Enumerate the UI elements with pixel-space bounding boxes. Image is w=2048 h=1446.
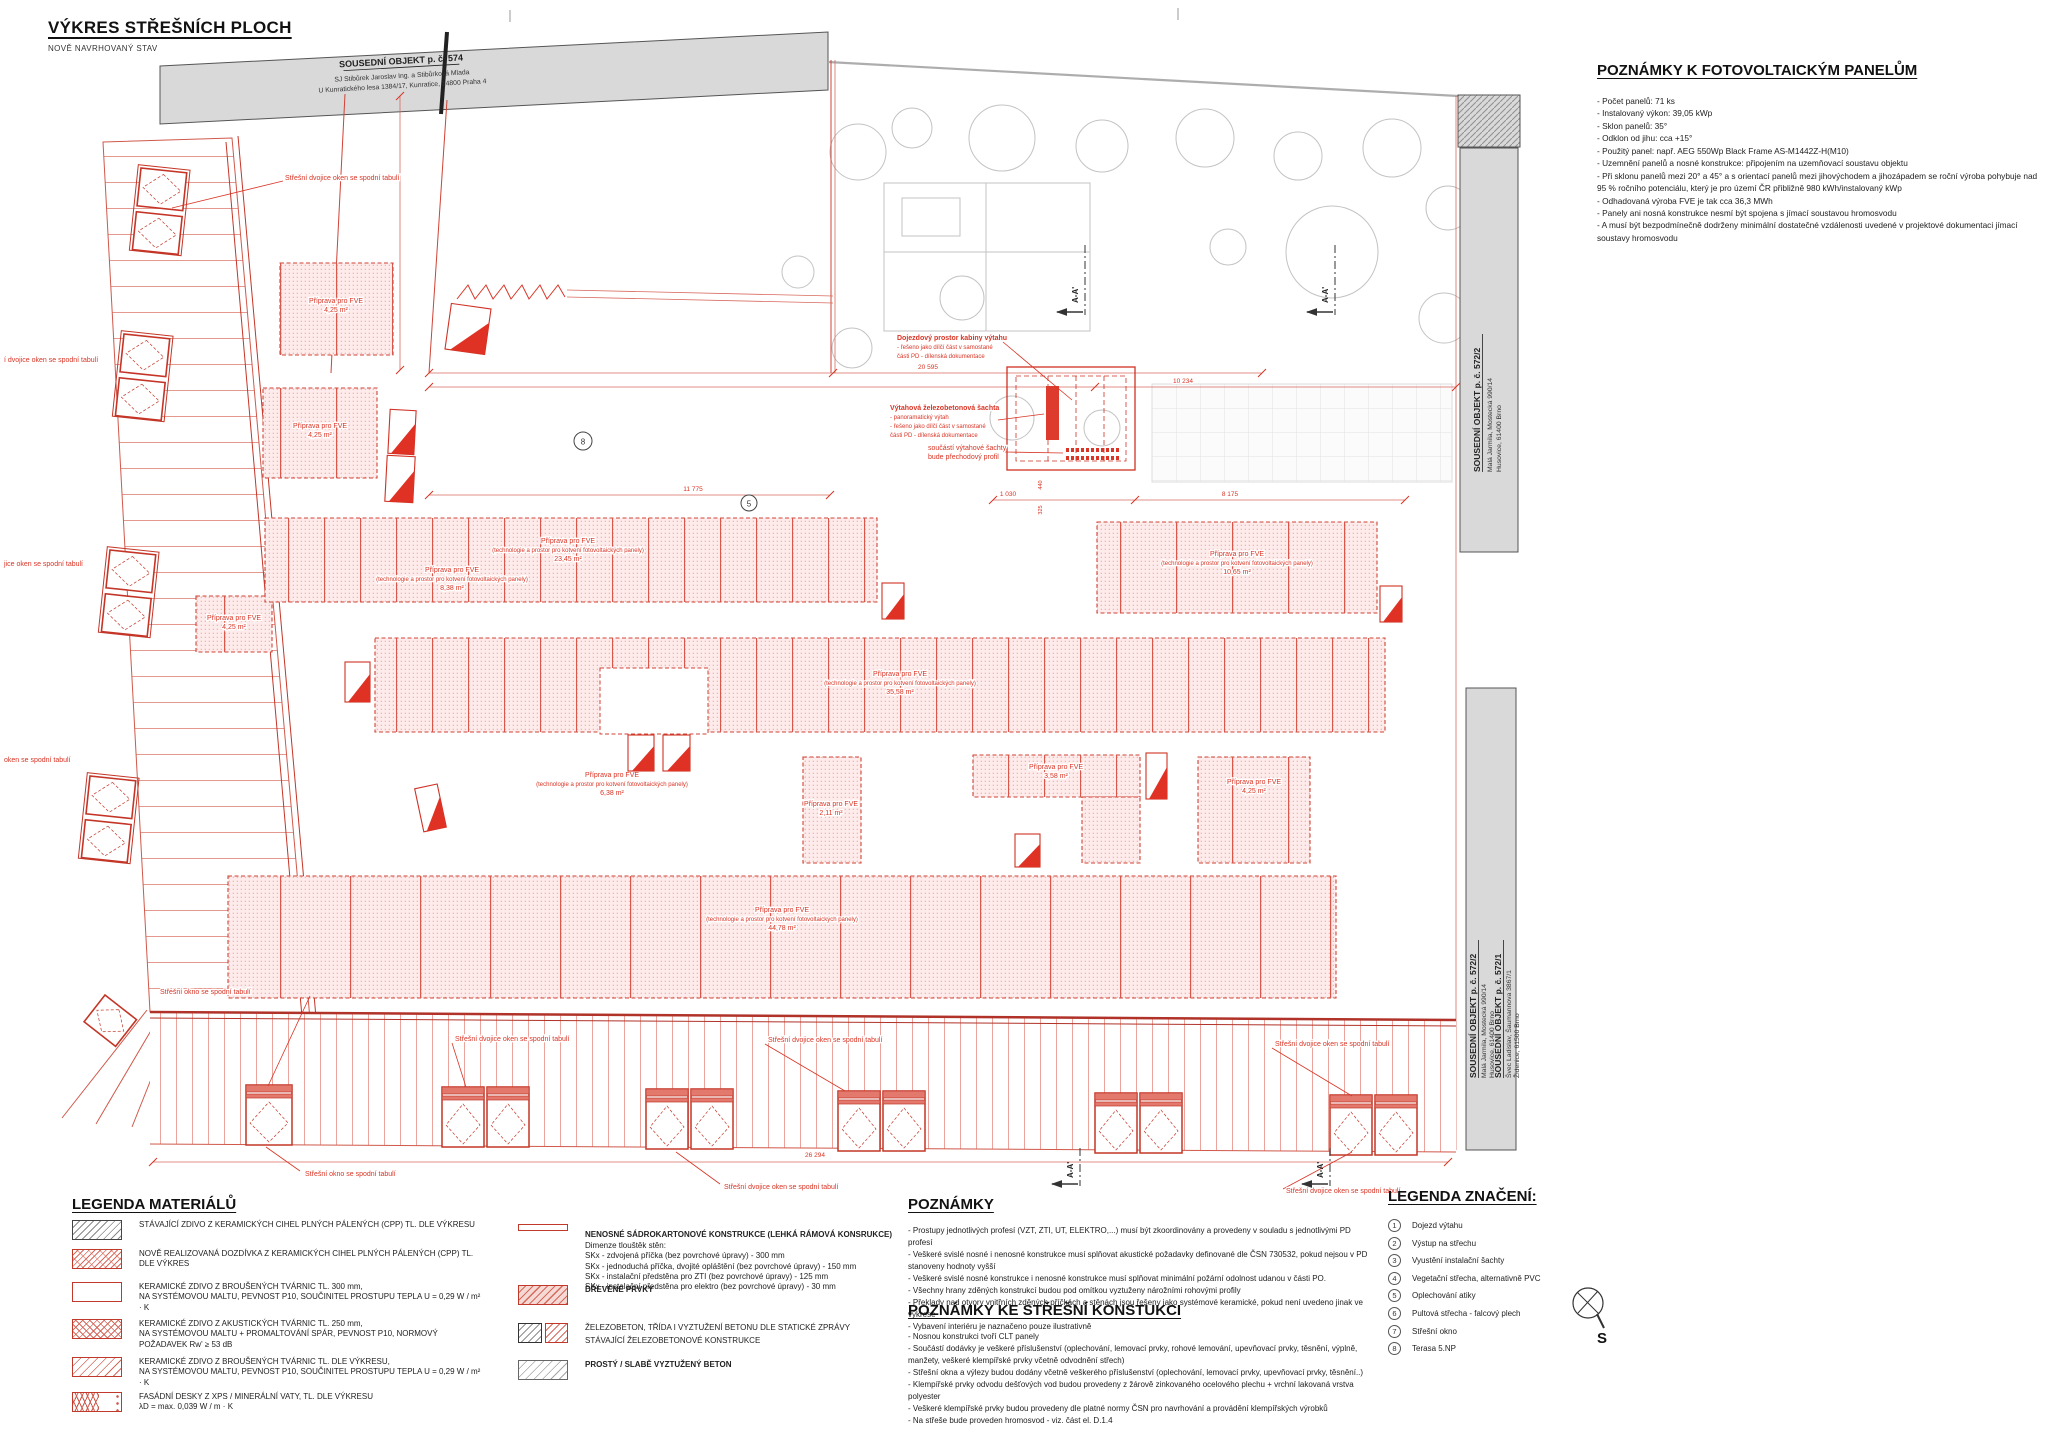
note-line: - Uzemnění panelů a nosné konstrukce: př… xyxy=(1597,157,2044,169)
note-line: - Veškeré svislé nosné konstrukce i neno… xyxy=(908,1273,1368,1285)
hatch-new-infill-swatch xyxy=(72,1249,122,1269)
svg-text:(technologie a prostor pro kot: (technologie a prostor pro kotvení fotov… xyxy=(492,548,644,554)
legend-row: ŽELEZOBETON, TŘÍDA I VYZTUŽENÍ BETONU DL… xyxy=(518,1323,938,1347)
svg-text:Příprava pro FVE: Příprava pro FVE xyxy=(425,567,479,574)
hatch-acoustic-block-swatch xyxy=(72,1319,122,1339)
svg-text:4,25 m²: 4,25 m² xyxy=(324,307,348,314)
hatch-plain-concrete-swatch xyxy=(518,1360,568,1380)
note-line: - Při sklonu panelů mezi 20° a 45° a s o… xyxy=(1597,170,2044,195)
svg-text:Příprava pro FVE: Příprava pro FVE xyxy=(293,423,347,430)
legend-symbols-title: LEGENDA ZNAČENÍ: xyxy=(1388,1188,1688,1205)
svg-text:35,58 m²: 35,58 m² xyxy=(886,689,914,696)
svg-text:Střešní dvojice oken se spodní: Střešní dvojice oken se spodní tabulí xyxy=(285,175,399,182)
svg-text:Příprava pro FVE: Příprava pro FVE xyxy=(541,538,595,545)
pv-notes-title: POZNÁMKY K FOTOVOLTAICKÝM PANELŮM xyxy=(1597,62,2044,79)
svg-text:4,25 m²: 4,25 m² xyxy=(308,432,332,439)
neighbor-bars-right: SOUSEDNÍ OBJEKT p. č. 572/2 Malá Jarmila… xyxy=(1456,95,1521,1150)
neighbor-572-1-address2: Židenice, 61500 Brno xyxy=(1512,1013,1521,1078)
symbol-number-badge: 6 xyxy=(1388,1307,1401,1320)
zone-b-notch xyxy=(600,668,708,734)
svg-text:Střešní okno se spodní tabulí: Střešní okno se spodní tabulí xyxy=(305,1171,396,1178)
legend-row: KERAMICKÉ ZDIVO Z BROUŠENÝCH TVÁRNIC TL.… xyxy=(72,1357,492,1388)
legend-symbols-panel: LEGENDA ZNAČENÍ: 1 Dojezd výtahu 2 Výstu… xyxy=(1388,1188,1688,1360)
svg-text:- panoramatický výtah: - panoramatický výtah xyxy=(890,415,949,421)
legend-materials-panel: LEGENDA MATERIÁLŮ STÁVAJÍCÍ ZDIVO Z KERA… xyxy=(72,1196,912,1436)
svg-text:Příprava pro FVE: Příprava pro FVE xyxy=(585,772,639,779)
page-subtitle: NOVĚ NAVRHOVANÝ STAV xyxy=(48,44,292,53)
note-line: - Nosnou konstrukci tvoří CLT panely xyxy=(908,1331,1368,1343)
garden-house-outline xyxy=(884,183,1090,331)
legend-symbols-list: 1 Dojezd výtahu 2 Výstup na střechu 3 Vy… xyxy=(1388,1219,1688,1355)
svg-text:Střešní dvojice oken se spodní: Střešní dvojice oken se spodní tabulí xyxy=(724,1184,838,1191)
note-line: - Instalovaný výkon: 39,05 kWp xyxy=(1597,107,2044,119)
svg-text:6,38 m²: 6,38 m² xyxy=(600,790,624,797)
symbol-label: Oplechování atiky xyxy=(1412,1291,1476,1300)
bottom-roof-band xyxy=(150,1012,1456,1155)
symbol-label: Dojezd výtahu xyxy=(1412,1221,1463,1230)
hatch-ground-block-swatch xyxy=(72,1357,122,1377)
dim-20595: 20 595 xyxy=(918,364,938,371)
svg-text:8,38 m²: 8,38 m² xyxy=(440,585,464,592)
symbol-label: Vegetační střecha, alternativně PVC xyxy=(1412,1274,1541,1283)
svg-text:(technologie a prostor pro kot: (technologie a prostor pro kotvení fotov… xyxy=(376,577,528,583)
svg-text:Střešní dvojice oken se spodní: Střešní dvojice oken se spodní tabulí xyxy=(768,1037,882,1044)
bottom-roof-window xyxy=(246,1085,292,1145)
note-line: - Klempířské prvky odvodu dešťových vod … xyxy=(908,1379,1368,1403)
sheet-ticks xyxy=(510,8,1178,22)
symbol-number-badge: 1 xyxy=(1388,1219,1401,1232)
garden-paving xyxy=(1152,384,1452,482)
strip-roof-window-pair xyxy=(78,773,139,864)
note-line: - Střešní okna a výlezy budou dodány vče… xyxy=(908,1367,1368,1379)
legend-row: PROSTÝ / SLABĚ VYZTUŽENÝ BETON xyxy=(518,1360,938,1380)
roof-notes-title: POZNÁMKY KE STŘEŠNÍ KONSTUKCI xyxy=(908,1302,1368,1319)
symbol-label: Terasa 5.NP xyxy=(1412,1344,1456,1353)
page-title: VÝKRES STŘEŠNÍCH PLOCH xyxy=(48,18,292,38)
legend-text: KERAMICKÉ ZDIVO Z BROUŠENÝCH TVÁRNIC TL.… xyxy=(139,1282,484,1313)
dim-1030: 1 030 xyxy=(1000,491,1017,498)
svg-text:Příprava pro FVE: Příprava pro FVE xyxy=(804,801,858,808)
svg-text:10,65 m²: 10,65 m² xyxy=(1223,569,1251,576)
mark-5: 5 xyxy=(747,500,752,509)
svg-text:í dvojice oken se spodní tabul: í dvojice oken se spodní tabulí xyxy=(4,357,98,364)
legend-symbol-row: 2 Výstup na střechu xyxy=(1388,1237,1688,1250)
note-line: - Panely ani nosná konstrukce nesmí být … xyxy=(1597,207,2044,219)
legend-drywall-title: NENOSNÉ SÁDROKARTONOVÉ KONSTRUKCE (LEHKÁ… xyxy=(585,1230,892,1239)
svg-text:A-A': A-A' xyxy=(1321,287,1330,303)
svg-text:2,11 m²: 2,11 m² xyxy=(819,810,843,817)
svg-text:(technologie a prostor pro kot: (technologie a prostor pro kotvení fotov… xyxy=(824,681,976,687)
legend-symbol-row: 1 Dojezd výtahu xyxy=(1388,1219,1688,1232)
note-line: - Na střeše bude proveden hromosvod - vi… xyxy=(908,1415,1368,1427)
legend-drywall-line: SKx - jednoduchá příčka, dvojité opláště… xyxy=(585,1262,938,1272)
neighbor-572-2-address2: Husovice, 61400 Brno xyxy=(1496,405,1503,472)
svg-text:Příprava pro FVE: Příprava pro FVE xyxy=(1210,551,1264,558)
svg-text:4,25 m²: 4,25 m² xyxy=(222,624,246,631)
legend-drywall-line: SKx - zdvojená příčka (bez povrchové úpr… xyxy=(585,1251,938,1261)
mark-8: 8 xyxy=(581,438,586,447)
svg-text:Výtahová železobetonová šachta: Výtahová železobetonová šachta xyxy=(890,405,999,412)
svg-text:Střešní dvojice oken se spodní: Střešní dvojice oken se spodní tabulí xyxy=(1275,1041,1389,1048)
symbol-number-badge: 5 xyxy=(1388,1289,1401,1302)
svg-text:bude přechodový profil: bude přechodový profil xyxy=(928,454,999,461)
symbol-label: Výstup na střechu xyxy=(1412,1239,1476,1248)
svg-text:Příprava pro FVE: Příprava pro FVE xyxy=(1029,764,1083,771)
elevator-shaft xyxy=(1046,386,1059,440)
neighbor-572-1-title: SOUSEDNÍ OBJEKT p. č. 572/1 xyxy=(1493,953,1503,1078)
hatch-block-300-swatch xyxy=(72,1282,122,1302)
note-line: - Sklon panelů: 35° xyxy=(1597,120,2044,132)
hatch-concrete-swatches xyxy=(518,1323,568,1343)
dim-10234: 10 234 xyxy=(1173,378,1193,385)
neighbor-572-1-address1: Švec Ladislav, Šaumannova 3867/1 xyxy=(1504,970,1513,1078)
legend-symbol-row: 6 Pultová střecha - falcový plech xyxy=(1388,1307,1688,1320)
note-line: - A musí být bezpodmínečně dodrženy mini… xyxy=(1597,219,2044,244)
svg-text:A-A': A-A' xyxy=(1316,1162,1325,1178)
legend-rc-line1: ŽELEZOBETON, TŘÍDA I VYZTUŽENÍ BETONU DL… xyxy=(585,1323,938,1333)
legend-rc-line2: STÁVAJÍCÍ ŽELEZOBETONOVÉ KONSTRUKCE xyxy=(585,1336,938,1346)
symbol-number-badge: 3 xyxy=(1388,1254,1401,1267)
hatch-xps-swatch xyxy=(72,1392,122,1412)
note-line: - Odhadovaná výroba FVE je tak cca 36,3 … xyxy=(1597,195,2044,207)
svg-text:(technologie a prostor pro kot: (technologie a prostor pro kotvení fotov… xyxy=(1161,561,1313,567)
neighbor-572-2b-address1: Malá Jarmila, Mostecká 990/14 xyxy=(1481,984,1488,1078)
legend-text: KERAMICKÉ ZDIVO Z AKUSTICKÝCH TVÁRNIC TL… xyxy=(139,1319,484,1350)
legend-symbol-row: 4 Vegetační střecha, alternativně PVC xyxy=(1388,1272,1688,1285)
note-line: - Použitý panel: např. AEG 550Wp Black F… xyxy=(1597,145,2044,157)
dim-11775: 11 775 xyxy=(683,486,703,493)
legend-text: PROSTÝ / SLABĚ VYZTUŽENÝ BETON xyxy=(585,1360,930,1370)
svg-text:Příprava pro FVE: Příprava pro FVE xyxy=(309,298,363,305)
svg-text:3,58 m²: 3,58 m² xyxy=(1044,773,1068,780)
dim-8175: 8 175 xyxy=(1222,491,1239,498)
note-line: - Prostupy jednotlivých profesí (VZT, ZT… xyxy=(908,1225,1368,1249)
legend-symbol-row: 3 Vyustění instalační šachty xyxy=(1388,1254,1688,1267)
legend-symbol-row: 5 Oplechování atiky xyxy=(1388,1289,1688,1302)
pv-notes-list: - Počet panelů: 71 ks- Instalovaný výkon… xyxy=(1597,95,2044,244)
roof-notes-list: - Nosnou konstrukci tvoří CLT panely- So… xyxy=(908,1331,1368,1427)
drawing-sheet: SOUSEDNÍ OBJEKT p. č. 574 SJ Stibůrek Ja… xyxy=(0,0,2048,1446)
svg-text:(technologie a prostor pro kot: (technologie a prostor pro kotvení fotov… xyxy=(536,782,688,788)
svg-text:oken se spodní tabulí: oken se spodní tabulí xyxy=(4,757,71,764)
legend-text: ŽELEZOBETON, TŘÍDA I VYZTUŽENÍ BETONU DL… xyxy=(585,1323,938,1347)
svg-text:Střešní okno se spodní tabulí: Střešní okno se spodní tabulí xyxy=(160,989,251,996)
svg-text:23,45 m²: 23,45 m² xyxy=(554,556,582,563)
symbol-number-badge: 7 xyxy=(1388,1325,1401,1338)
svg-text:části PD - dílenská dokumentac: části PD - dílenská dokumentace xyxy=(890,433,978,439)
strip-roof-window xyxy=(84,995,136,1046)
neighbor-572-2-address1: Malá Jarmila, Mostecká 990/14 xyxy=(1487,378,1494,472)
legend-row: NOVĚ REALIZOVANÁ DOZDÍVKA Z KERAMICKÝCH … xyxy=(72,1249,492,1270)
svg-text:jice oken se spodní tabulí: jice oken se spodní tabulí xyxy=(3,561,83,568)
svg-text:části PD - dílenská dokumentac: části PD - dílenská dokumentace xyxy=(897,354,985,360)
legend-text: FASÁDNÍ DESKY Z XPS / MINERÁLNÍ VATY, TL… xyxy=(139,1392,484,1413)
hatch-drywall-swatch xyxy=(518,1224,568,1231)
pv-notes-panel: POZNÁMKY K FOTOVOLTAICKÝM PANELŮM - Poče… xyxy=(1597,62,2044,244)
svg-text:Dojezdový prostor kabiny výtah: Dojezdový prostor kabiny výtahu xyxy=(897,335,1007,342)
title-block: VÝKRES STŘEŠNÍCH PLOCH NOVĚ NAVRHOVANÝ S… xyxy=(48,18,292,53)
legend-symbol-row: 8 Terasa 5.NP xyxy=(1388,1342,1688,1355)
legend-text: DŘEVĚNÉ PRVKY xyxy=(585,1285,930,1295)
legend-drywall-line: Dimenze tlouštěk stěn: xyxy=(585,1241,938,1251)
note-line: - Všechny hrany zděných konstrukcí budou… xyxy=(908,1285,1368,1297)
symbol-number-badge: 8 xyxy=(1388,1342,1401,1355)
svg-text:44,78 m²: 44,78 m² xyxy=(768,925,796,932)
roof-notes-panel: POZNÁMKY KE STŘEŠNÍ KONSTUKCI - Nosnou k… xyxy=(908,1302,1368,1427)
legend-text: NOVĚ REALIZOVANÁ DOZDÍVKA Z KERAMICKÝCH … xyxy=(139,1249,484,1270)
symbol-number-badge: 4 xyxy=(1388,1272,1401,1285)
svg-text:Střešní dvojice oken se spodní: Střešní dvojice oken se spodní tabulí xyxy=(455,1036,569,1043)
neighbor-572-2-title: SOUSEDNÍ OBJEKT p. č. 572/2 xyxy=(1472,347,1482,472)
note-line: - Počet panelů: 71 ks xyxy=(1597,95,2044,107)
legend-text: KERAMICKÉ ZDIVO Z BROUŠENÝCH TVÁRNIC TL.… xyxy=(139,1357,484,1388)
hatch-wood-swatch xyxy=(518,1285,568,1305)
svg-text:- řešeno jako dílčí část v sam: - řešeno jako dílčí část v samostané xyxy=(890,424,986,430)
svg-text:Příprava pro FVE: Příprava pro FVE xyxy=(755,907,809,914)
symbol-label: Vyustění instalační šachty xyxy=(1412,1256,1504,1265)
svg-text:(technologie a prostor pro kot: (technologie a prostor pro kotvení fotov… xyxy=(706,917,858,923)
svg-text:Střešní dvojice oken se spodní: Střešní dvojice oken se spodní tabulí xyxy=(1286,1188,1400,1195)
legend-drywall-line: SKx - instalační předstěna pro ZTI (bez … xyxy=(585,1272,938,1282)
hatch-existing-masonry-swatch xyxy=(72,1220,122,1240)
dim-325: 325 xyxy=(1038,505,1044,514)
legend-row: DŘEVĚNÉ PRVKY xyxy=(518,1285,938,1305)
svg-text:Příprava pro FVE: Příprava pro FVE xyxy=(207,615,261,622)
svg-text:- řešeno jako dílčí část v sam: - řešeno jako dílčí část v samostané xyxy=(897,345,993,351)
svg-text:součástí výtahové šachty: součástí výtahové šachty xyxy=(928,445,1007,452)
zone-c358b xyxy=(1082,797,1140,863)
hatch-new-rc-swatch xyxy=(545,1323,569,1343)
svg-text:4,25 m²: 4,25 m² xyxy=(1242,788,1266,795)
legend-materials-title: LEGENDA MATERIÁLŮ xyxy=(72,1196,912,1213)
legend-symbol-row: 7 Střešní okno xyxy=(1388,1325,1688,1338)
legend-row: FASÁDNÍ DESKY Z XPS / MINERÁLNÍ VATY, TL… xyxy=(72,1392,492,1413)
note-line: - Veškeré klempířské prvky budou provede… xyxy=(908,1403,1368,1415)
svg-text:Příprava pro FVE: Příprava pro FVE xyxy=(1227,779,1281,786)
svg-text:Příprava pro FVE: Příprava pro FVE xyxy=(873,671,927,678)
symbol-label: Pultová střecha - falcový plech xyxy=(1412,1309,1521,1318)
legend-row: KERAMICKÉ ZDIVO Z AKUSTICKÝCH TVÁRNIC TL… xyxy=(72,1319,492,1350)
note-line: - Součástí dodávky je veškeré příslušens… xyxy=(908,1343,1368,1367)
note-line: - Veškeré svislé nosné i nenosné konstru… xyxy=(908,1249,1368,1273)
svg-text:A-A': A-A' xyxy=(1071,287,1080,303)
legend-text: STÁVAJÍCÍ ZDIVO Z KERAMICKÝCH CIHEL PLNÝ… xyxy=(139,1220,484,1230)
legend-row: KERAMICKÉ ZDIVO Z BROUŠENÝCH TVÁRNIC TL.… xyxy=(72,1282,492,1313)
notes-title: POZNÁMKY xyxy=(908,1196,1368,1213)
dim-440: 440 xyxy=(1038,480,1044,489)
note-line: - Odklon od jihu: cca +15° xyxy=(1597,132,2044,144)
legend-row: STÁVAJÍCÍ ZDIVO Z KERAMICKÝCH CIHEL PLNÝ… xyxy=(72,1220,492,1240)
dim-26294: 26 294 xyxy=(805,1152,825,1159)
symbol-number-badge: 2 xyxy=(1388,1237,1401,1250)
symbol-label: Střešní okno xyxy=(1412,1327,1457,1336)
svg-text:A-A': A-A' xyxy=(1066,1162,1075,1178)
hatch-existing-rc-swatch xyxy=(518,1323,542,1343)
elevator-shaft-detail: Dojezdový prostor kabiny výtahu - řešeno… xyxy=(890,335,1135,470)
neighbor-572-2b-title: SOUSEDNÍ OBJEKT p. č. 572/2 xyxy=(1468,953,1478,1078)
